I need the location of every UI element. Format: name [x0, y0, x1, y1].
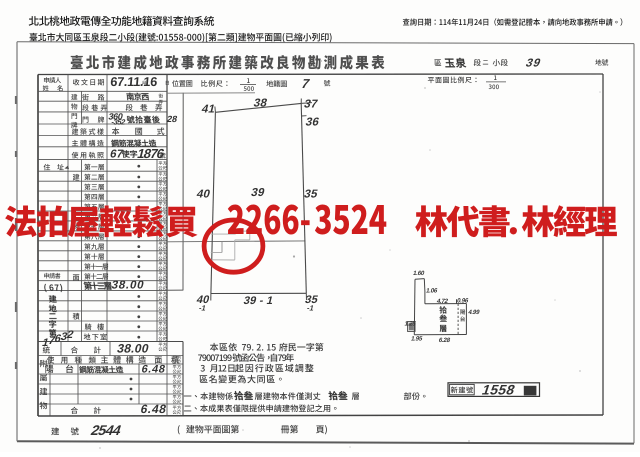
- svg-text:38.00: 38.00: [116, 342, 150, 356]
- svg-text:1876: 1876: [136, 146, 166, 161]
- svg-text:6.48: 6.48: [139, 402, 168, 416]
- svg-text:67: 67: [109, 148, 125, 161]
- svg-text:28: 28: [166, 114, 178, 124]
- svg-text:-352: -352: [111, 118, 126, 127]
- svg-text:2544: 2544: [89, 423, 123, 439]
- svg-text:6.48: 6.48: [140, 363, 166, 375]
- svg-text:1558: 1558: [480, 382, 517, 398]
- svg-text:67.11.16: 67.11.16: [110, 74, 158, 89]
- svg-text:39 - 1: 39 - 1: [242, 295, 274, 307]
- svg-text:38.00: 38.00: [110, 278, 145, 291]
